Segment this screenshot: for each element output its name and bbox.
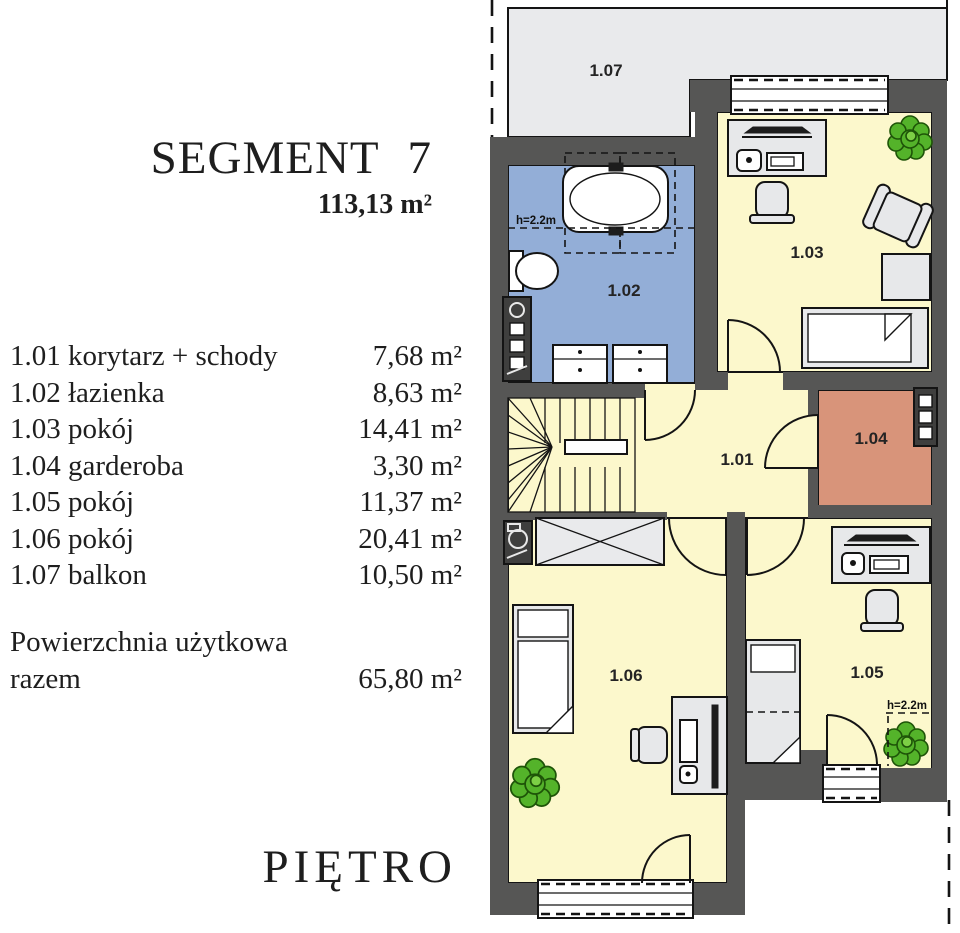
desk	[728, 120, 826, 176]
room-label-101: 1.01	[720, 450, 753, 469]
legend-row: 1.03 pokój 14,41 m²	[10, 411, 462, 448]
window	[538, 880, 693, 918]
toilet	[509, 251, 558, 291]
legend-row: 1.06 pokój 20,41 m²	[10, 521, 462, 558]
room-area: 3,30 m²	[373, 448, 462, 485]
sink	[553, 345, 607, 383]
room-label-104: 1.04	[854, 429, 888, 448]
usable-area-total: Powierzchnia użytkowa razem 65,80 m²	[10, 624, 462, 698]
sink	[613, 345, 667, 383]
height-label-102: h=2.2m	[516, 215, 556, 227]
title-block: SEGMENT 7 113,13 m²	[0, 134, 432, 221]
room-area: 20,41 m²	[358, 521, 462, 558]
room-area: 14,41 m²	[358, 411, 462, 448]
desk	[832, 527, 930, 583]
room-name: 1.04 garderoba	[10, 448, 184, 485]
bed	[746, 640, 800, 763]
side-table	[882, 254, 930, 300]
stair-handrail	[565, 440, 627, 454]
desk-chair	[631, 727, 667, 763]
legend-row: 1.02 łazienka 8,63 m²	[10, 375, 462, 412]
room-name: 1.05 pokój	[10, 484, 134, 521]
room-name: 1.01 korytarz + schody	[10, 338, 278, 375]
info-panel: SEGMENT 7 113,13 m² 1.01 korytarz + scho…	[0, 0, 490, 928]
room-label-103: 1.03	[790, 243, 823, 262]
wardrobe-cabinet	[536, 518, 664, 565]
washing-machine	[504, 521, 532, 564]
room-legend: 1.01 korytarz + schody 7,68 m² 1.02 łazi…	[10, 338, 462, 594]
floor-name: PIĘTRO	[10, 840, 457, 894]
room-label-102: 1.02	[607, 281, 640, 300]
room-name: 1.06 pokój	[10, 521, 134, 558]
legend-row: 1.07 balkon 10,50 m²	[10, 557, 462, 594]
desk-chair	[861, 590, 903, 631]
bed	[513, 605, 573, 733]
segment-title: SEGMENT 7	[0, 134, 432, 183]
window	[731, 76, 888, 114]
room-area: 7,68 m²	[373, 338, 462, 375]
room-name: 1.02 łazienka	[10, 375, 165, 412]
room-area: 11,37 m²	[359, 484, 462, 521]
floor-plan: 1.07 1.02 1.03 1.01 1.04 1.05 1.06 h=2.2…	[490, 0, 960, 928]
height-label-105: h=2.2m	[887, 700, 927, 712]
room-label-105: 1.05	[850, 663, 883, 682]
desk	[672, 697, 727, 794]
room-area: 10,50 m²	[358, 557, 462, 594]
chimney-shaft	[914, 388, 937, 446]
usable-area-label: Powierzchnia użytkowa	[10, 624, 462, 661]
legend-row: 1.01 korytarz + schody 7,68 m²	[10, 338, 462, 375]
room-label-106: 1.06	[609, 666, 642, 685]
towel-radiator	[503, 297, 531, 381]
legend-row: 1.05 pokój 11,37 m²	[10, 484, 462, 521]
segment-total-area: 113,13 m²	[0, 189, 432, 221]
room-name: 1.07 balkon	[10, 557, 147, 594]
room-name: 1.03 pokój	[10, 411, 134, 448]
desk-chair	[750, 182, 794, 223]
legend-row: 1.04 garderoba 3,30 m²	[10, 448, 462, 485]
room-label-107: 1.07	[589, 61, 622, 80]
room-area: 8,63 m²	[373, 375, 462, 412]
bed	[802, 308, 928, 368]
usable-area-value: 65,80 m²	[358, 661, 462, 698]
usable-area-label-2: razem	[10, 661, 81, 698]
window	[823, 765, 880, 802]
